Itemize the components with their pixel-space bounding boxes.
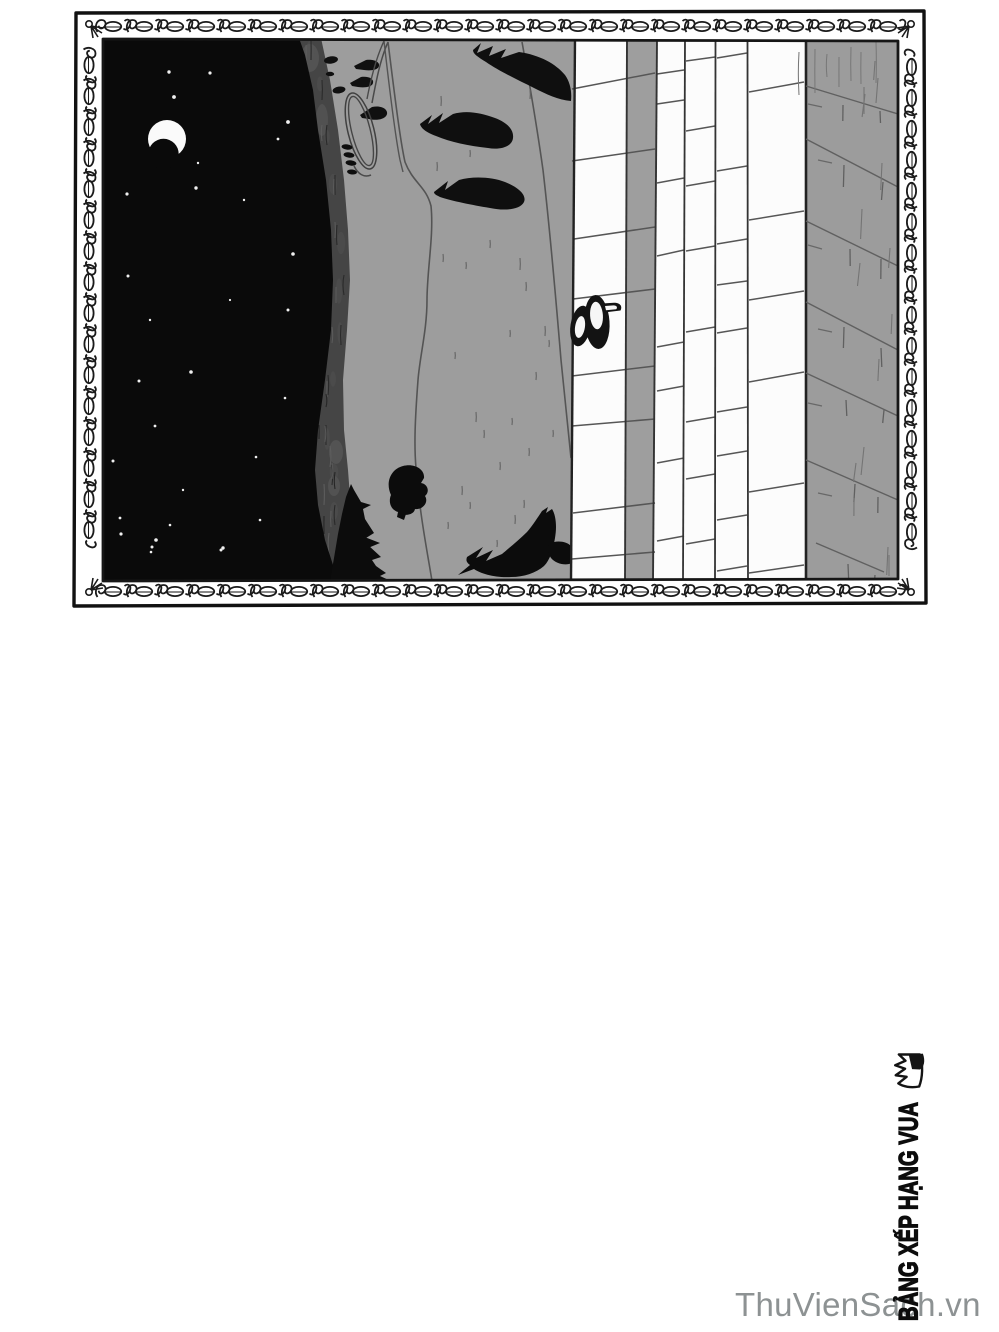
svg-text:BẢNG XẾP HẠNG VUA: BẢNG XẾP HẠNG VUA [892,1102,924,1321]
svg-text:ThuVienSach.vn: ThuVienSach.vn [735,1286,981,1323]
